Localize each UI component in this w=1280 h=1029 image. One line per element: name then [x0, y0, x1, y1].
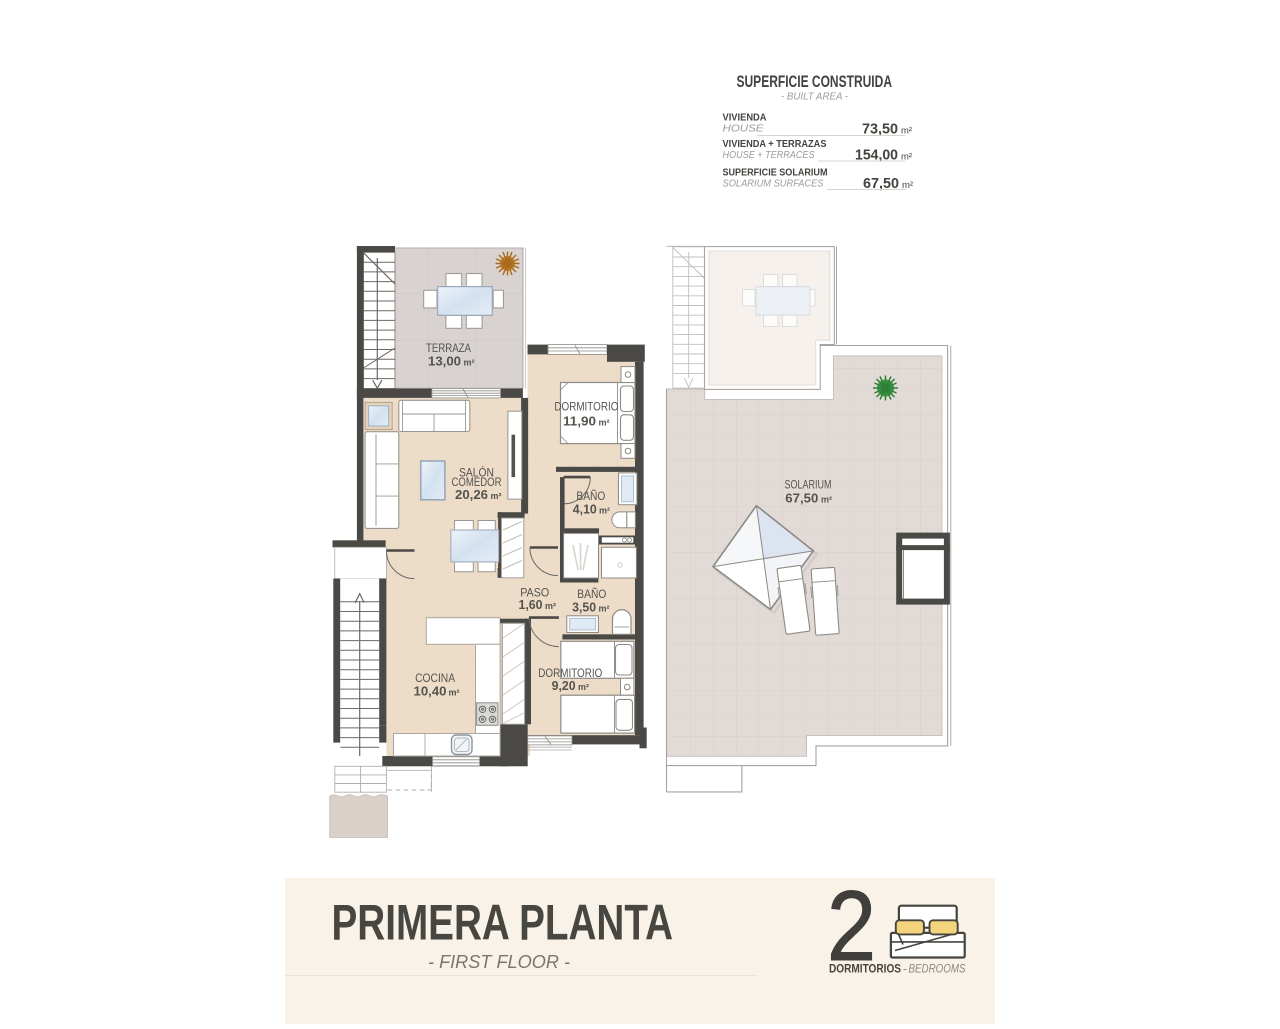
svg-text:m²: m² — [901, 126, 912, 137]
svg-text:COCINA: COCINA — [415, 671, 455, 685]
svg-text:3,50: 3,50 — [572, 600, 596, 614]
svg-text:BEDROOMS: BEDROOMS — [909, 962, 966, 976]
svg-text:DORMITORIO: DORMITORIO — [538, 666, 602, 680]
svg-text:m²: m² — [578, 682, 589, 692]
svg-text:20,26: 20,26 — [455, 488, 488, 502]
svg-text:1,60: 1,60 — [519, 598, 543, 612]
svg-text:m²: m² — [491, 491, 502, 501]
svg-text:COMEDOR: COMEDOR — [452, 475, 502, 489]
svg-text:4,10: 4,10 — [573, 502, 597, 516]
svg-text:HOUSE + TERRACES: HOUSE + TERRACES — [723, 149, 815, 161]
svg-text:PRIMERA PLANTA: PRIMERA PLANTA — [332, 895, 674, 951]
svg-text:m²: m² — [599, 505, 610, 515]
svg-text:HOUSE: HOUSE — [723, 123, 765, 135]
svg-text:m²: m² — [599, 417, 610, 427]
svg-text:m²: m² — [599, 603, 610, 613]
svg-text:SOLARIUM: SOLARIUM — [785, 477, 832, 491]
svg-text:DORMITORIO: DORMITORIO — [554, 400, 618, 414]
svg-text:m²: m² — [449, 688, 460, 698]
svg-text:BAÑO: BAÑO — [577, 587, 606, 601]
svg-text:9,20: 9,20 — [552, 679, 576, 693]
svg-text:BAÑO: BAÑO — [576, 489, 605, 503]
svg-text:11,90: 11,90 — [563, 414, 596, 428]
svg-text:-: - — [903, 962, 907, 976]
svg-text:- FIRST FLOOR -: - FIRST FLOOR - — [428, 952, 570, 972]
svg-text:SOLARIUM SURFACES: SOLARIUM SURFACES — [723, 178, 824, 190]
svg-text:10,40: 10,40 — [414, 685, 447, 699]
svg-text:- BUILT AREA -: - BUILT AREA - — [781, 91, 848, 103]
svg-text:SUPERFICIE CONSTRUIDA: SUPERFICIE CONSTRUIDA — [737, 73, 893, 91]
svg-text:13,00: 13,00 — [428, 355, 461, 369]
svg-text:TERRAZA: TERRAZA — [426, 341, 471, 355]
svg-text:m²: m² — [545, 601, 556, 611]
svg-text:67,50: 67,50 — [785, 492, 818, 506]
svg-text:m²: m² — [821, 495, 832, 505]
svg-text:DORMITORIOS: DORMITORIOS — [829, 962, 901, 976]
svg-text:m²: m² — [464, 358, 475, 368]
